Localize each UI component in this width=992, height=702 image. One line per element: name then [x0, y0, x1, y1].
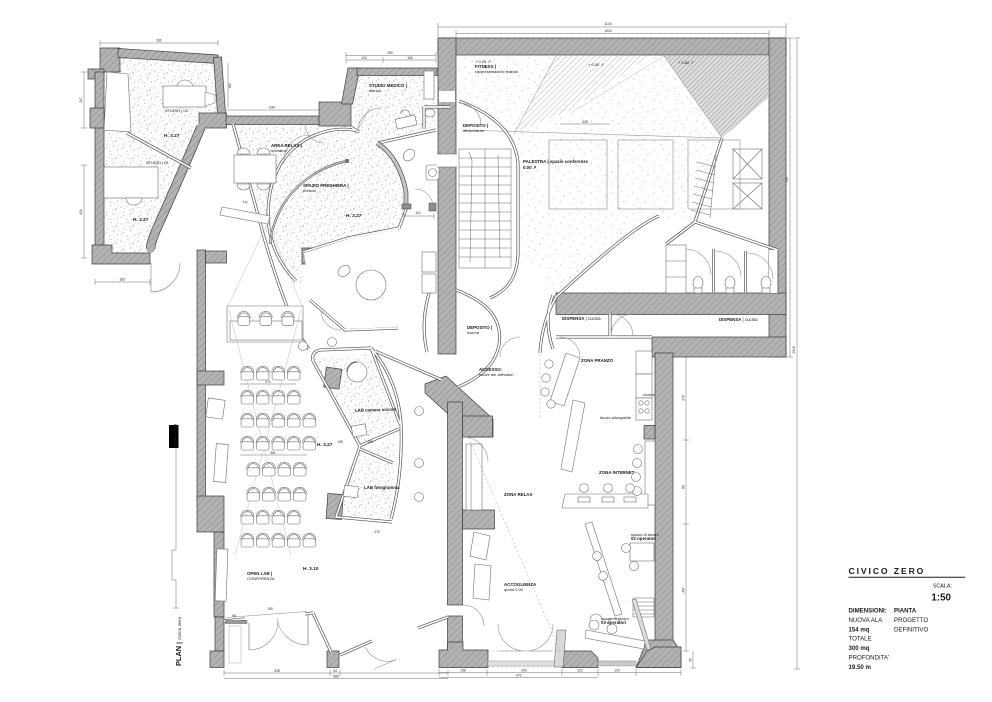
- svg-text:SCALA:: SCALA:: [933, 584, 952, 590]
- svg-text:1143: 1143: [604, 22, 611, 26]
- svg-text:PIANTA: PIANTA: [894, 608, 917, 615]
- svg-text:361: 361: [270, 451, 276, 455]
- svg-text:328: 328: [274, 669, 280, 673]
- svg-text:1018: 1018: [792, 346, 796, 354]
- svg-text:112: 112: [577, 669, 582, 673]
- svg-text:+ 0.40 ↗: + 0.40 ↗: [588, 62, 604, 67]
- svg-text:NUOVA ALA: NUOVA ALA: [849, 617, 884, 624]
- svg-text:66: 66: [682, 485, 686, 489]
- svg-text:279: 279: [682, 395, 686, 401]
- svg-text:attrezzature: attrezzature: [463, 128, 485, 133]
- svg-text:680: 680: [333, 675, 339, 679]
- svg-text:52: 52: [689, 658, 693, 662]
- svg-text:nuove ale allevatori: nuove ale allevatori: [479, 372, 514, 377]
- svg-text:ZONA INTERNET: ZONA INTERNET: [599, 470, 635, 475]
- svg-text:110: 110: [415, 211, 420, 215]
- svg-text:H. 3.27: H. 3.27: [164, 133, 180, 139]
- svg-text:STUDIO | 01: STUDIO | 01: [146, 160, 170, 165]
- svg-text:139: 139: [337, 440, 343, 444]
- svg-text:160: 160: [407, 56, 413, 60]
- svg-text:+ 0.60 ↗: + 0.60 ↗: [678, 60, 694, 65]
- svg-text:434: 434: [269, 106, 275, 110]
- svg-text:CONFERENZA: CONFERENZA: [247, 576, 275, 581]
- svg-text:PALESTRA | spazio conferenze: PALESTRA | spazio conferenze: [523, 159, 588, 164]
- svg-text:H. 3.27: H. 3.27: [133, 217, 149, 223]
- svg-text:240: 240: [521, 669, 527, 673]
- svg-text:03 operatori: 03 operatori: [601, 620, 626, 625]
- svg-text:1024: 1024: [604, 29, 612, 33]
- svg-text:ZONA PRANZO: ZONA PRANZO: [581, 358, 614, 363]
- svg-text:PROGETTO: PROGETTO: [894, 617, 928, 624]
- svg-text:472: 472: [516, 674, 522, 678]
- svg-text:rappresentazioni teatrali: rappresentazioni teatrali: [475, 69, 518, 74]
- svg-text:124: 124: [361, 56, 367, 60]
- svg-text:DIMENSIONI:: DIMENSIONI:: [849, 608, 887, 615]
- svg-text:LAB fotogramma: LAB fotogramma: [364, 485, 400, 490]
- svg-text:190: 190: [267, 607, 273, 611]
- svg-text:quota 0.00: quota 0.00: [504, 587, 524, 592]
- svg-text:133: 133: [367, 440, 373, 444]
- svg-text:H. 3.27: H. 3.27: [317, 442, 333, 448]
- svg-text:operatori: operatori: [271, 148, 287, 153]
- svg-text:stanza: stanza: [369, 88, 382, 93]
- svg-text:162: 162: [228, 83, 232, 89]
- svg-text:1:50: 1:50: [931, 593, 951, 604]
- svg-text:0.00 ↗: 0.00 ↗: [523, 165, 536, 170]
- svg-text:261: 261: [156, 39, 162, 43]
- svg-text:STUDIO | 02: STUDIO | 02: [165, 108, 189, 113]
- svg-text:247: 247: [79, 97, 83, 103]
- svg-text:183: 183: [119, 278, 125, 282]
- svg-text:98: 98: [232, 614, 236, 618]
- svg-text:424: 424: [79, 209, 83, 215]
- svg-text:425: 425: [582, 120, 588, 124]
- svg-text:34: 34: [333, 669, 337, 673]
- svg-text:DEFINITIVO: DEFINITIVO: [894, 626, 928, 633]
- svg-text:DISPENSA | cucina: DISPENSA | cucina: [719, 317, 758, 322]
- svg-text:H. 3.27: H. 3.27: [346, 213, 362, 219]
- svg-text:457: 457: [682, 587, 686, 593]
- svg-text:riunioni: riunioni: [303, 188, 316, 193]
- svg-text:ZONA RELAX: ZONA RELAX: [504, 492, 532, 497]
- svg-text:tavolo allungabile: tavolo allungabile: [600, 415, 632, 420]
- svg-text:SCALA 1:50: SCALA 1:50: [173, 424, 178, 446]
- svg-text:DISPENSA | cucina: DISPENSA | cucina: [562, 316, 601, 321]
- svg-text:19.50 m: 19.50 m: [849, 664, 872, 671]
- svg-text:02 operatori: 02 operatori: [631, 536, 656, 541]
- svg-text:271: 271: [265, 380, 271, 384]
- svg-text:156: 156: [460, 669, 466, 673]
- svg-text:300 mq: 300 mq: [849, 645, 870, 652]
- svg-text:cucina: cucina: [643, 392, 655, 397]
- svg-text:PROFONDITA': PROFONDITA': [849, 655, 890, 662]
- svg-text:250: 250: [387, 51, 393, 55]
- svg-text:154 mq: 154 mq: [849, 626, 870, 633]
- svg-text:riserva: riserva: [467, 330, 480, 335]
- svg-text:170: 170: [374, 530, 380, 534]
- svg-text:TOTALE: TOTALE: [849, 636, 872, 643]
- svg-text:753: 753: [785, 177, 789, 183]
- svg-text:CIVICO ZERO: CIVICO ZERO: [849, 566, 926, 576]
- svg-text:H. 3.10: H. 3.10: [303, 566, 319, 572]
- svg-text:120: 120: [614, 669, 620, 673]
